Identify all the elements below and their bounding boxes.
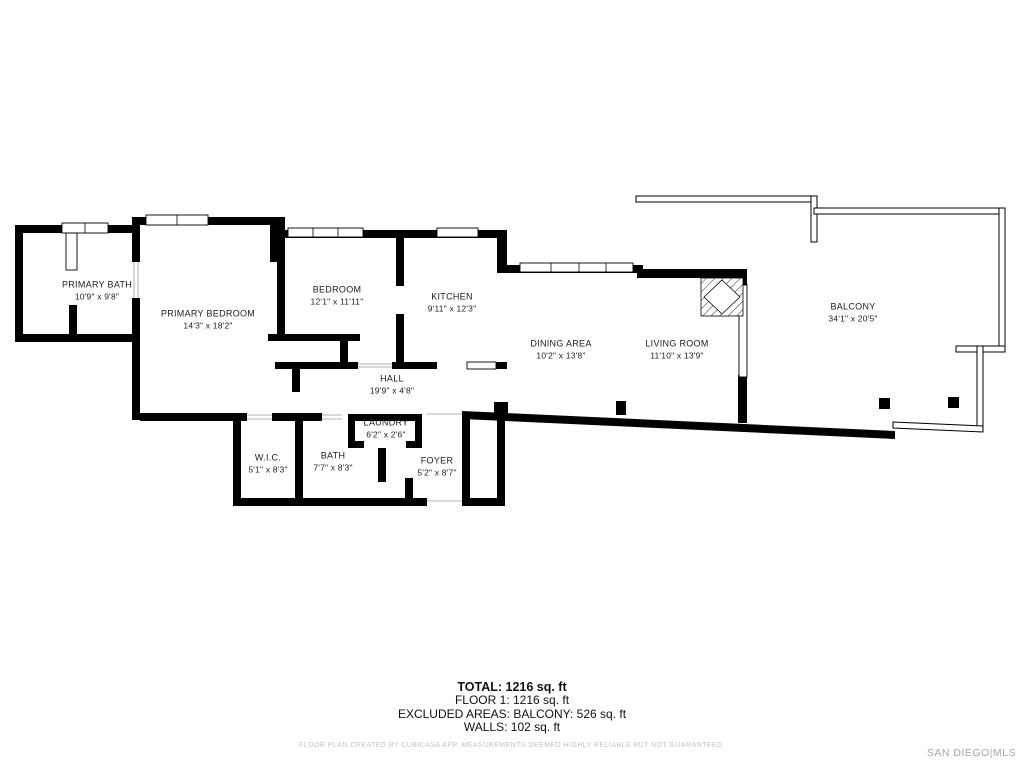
room-dims: 34'1" x 20'5" (828, 313, 877, 325)
room-name: LAUNDRY (364, 418, 409, 430)
room-dims: 12'1" x 11'11" (311, 296, 364, 308)
excluded-areas: EXCLUDED AREAS: BALCONY: 526 sq. ft (0, 708, 1024, 722)
room-dims: 10'2" x 13'8" (530, 350, 591, 362)
room-name: DINING AREA (530, 339, 591, 351)
room-label-dining-area: DINING AREA 10'2" x 13'8" (530, 339, 591, 362)
room-dims: 6'2" x 2'6" (364, 429, 409, 441)
room-name: BEDROOM (311, 285, 364, 297)
room-dims: 10'9" x 9'8" (62, 291, 132, 303)
room-dims: 5'1" x 8'3" (248, 464, 287, 476)
room-dims: 7'7" x 8'3" (313, 462, 352, 474)
disclaimer-text: FLOOR PLAN CREATED BY CUBICASA APP. MEAS… (0, 742, 1024, 749)
room-dims: 14'3" x 18'2" (161, 320, 255, 332)
room-name: BALCONY (828, 302, 877, 314)
windows (62, 215, 747, 377)
room-label-bedroom: BEDROOM 12'1" x 11'11" (311, 285, 364, 308)
floor1-area: FLOOR 1: 1216 sq. ft (0, 694, 1024, 708)
room-name: PRIMARY BEDROOM (161, 309, 255, 321)
room-name: FOYER (417, 456, 456, 468)
total-area: TOTAL: 1216 sq. ft (0, 680, 1024, 694)
room-label-balcony: BALCONY 34'1" x 20'5" (828, 302, 877, 325)
fireplace (701, 278, 743, 316)
room-dims: 19'9" x 4'8" (370, 385, 414, 397)
room-label-hall: HALL 19'9" x 4'8" (370, 374, 414, 397)
room-name: BATH (313, 451, 352, 463)
balcony-posts (879, 397, 959, 409)
floor-plan-drawing (0, 0, 1024, 768)
walls-area: WALLS: 102 sq. ft (0, 721, 1024, 735)
room-label-laundry: LAUNDRY 6'2" x 2'6" (364, 418, 409, 441)
room-name: W.I.C. (248, 453, 287, 465)
room-label-foyer: FOYER 5'2" x 8'7" (417, 456, 456, 479)
room-dims: 5'2" x 8'7" (417, 467, 456, 479)
room-label-primary-bedroom: PRIMARY BEDROOM 14'3" x 18'2" (161, 309, 255, 332)
area-summary: TOTAL: 1216 sq. ft FLOOR 1: 1216 sq. ft … (0, 680, 1024, 735)
room-label-primary-bath: PRIMARY BATH 10'9" x 9'8" (62, 280, 132, 303)
room-label-wic: W.I.C. 5'1" x 8'3" (248, 453, 287, 476)
room-dims: 9'11" x 12'3" (428, 303, 477, 315)
room-name: PRIMARY BATH (62, 280, 132, 292)
sandiego-mls-watermark: SAN DIEGO|MLS (927, 747, 1016, 759)
room-name: HALL (370, 374, 414, 386)
balcony-outline (636, 196, 1005, 432)
room-label-bath: BATH 7'7" x 8'3" (313, 451, 352, 474)
room-label-living-room: LIVING ROOM 11'10" x 13'9" (645, 339, 708, 362)
floor-plan-page: PRIMARY BATH 10'9" x 9'8" PRIMARY BEDROO… (0, 0, 1024, 768)
room-name: LIVING ROOM (645, 339, 708, 351)
room-dims: 11'10" x 13'9" (645, 350, 708, 362)
room-name: KITCHEN (428, 292, 477, 304)
door-leaf (66, 233, 77, 270)
room-label-kitchen: KITCHEN 9'11" x 12'3" (428, 292, 477, 315)
